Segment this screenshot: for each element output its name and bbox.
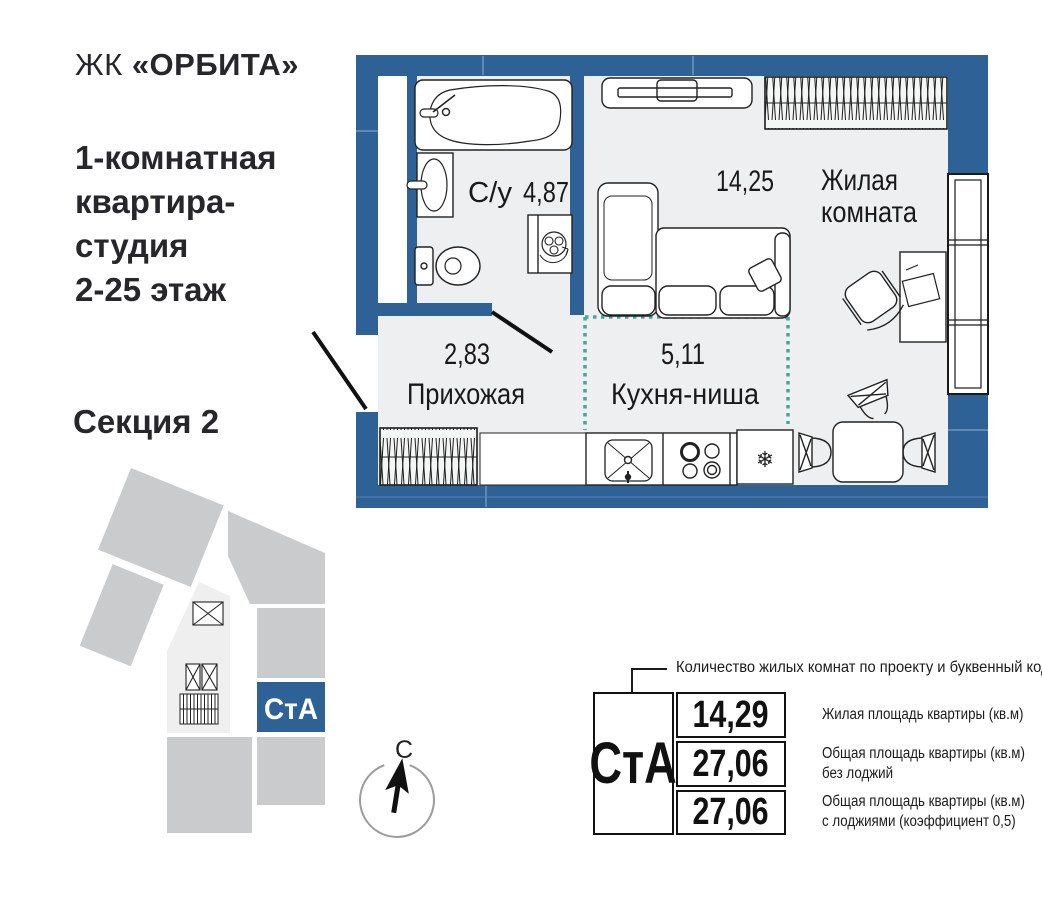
complex-prefix: ЖК (75, 47, 123, 82)
legend-unit-code: СтА (593, 692, 674, 835)
living-room-label: комната (821, 196, 917, 229)
living-room-area: 14,25 (716, 165, 774, 198)
floor-plan: ❄ С/у 4,87 14,25 Жилая комната 2,83 Прих… (300, 40, 1010, 520)
toilet (415, 247, 480, 285)
unit-code-badge: СтА (264, 693, 318, 726)
entry-cabinet (480, 433, 586, 485)
fridge-snowflake-icon: ❄ (756, 447, 774, 472)
living-room-label: Жилая (821, 164, 898, 197)
hallway-wardrobe (380, 428, 477, 485)
north-compass: С (340, 722, 460, 842)
apartment-title-line: 1-комнатная (75, 136, 277, 180)
legend-desc: Общая площадь квартиры (кв.м) без лоджий (822, 744, 1042, 783)
apartment-title-line: студия (75, 224, 277, 268)
legend-note: Количество жилых комнат по проекту и бук… (676, 659, 1042, 677)
wardrobe (765, 77, 947, 129)
kitchen-area: 5,11 (661, 338, 705, 371)
dining-table (833, 422, 903, 482)
entrance-door-leaf (313, 332, 366, 409)
complex-title: «ОРБИТА» (132, 47, 299, 82)
legend-value-living: 14,29 (676, 692, 786, 738)
apartment-title-line: квартира- (75, 180, 277, 224)
fridge: ❄ (737, 430, 793, 484)
north-letter: С (395, 736, 413, 764)
desk (900, 252, 946, 342)
bathroom-area: 4,87 (523, 177, 569, 209)
window (948, 174, 988, 394)
bathroom-label: С/у (468, 177, 513, 209)
hallway-label: Прихожая (407, 378, 525, 411)
section-label: Секция 2 (73, 403, 219, 441)
hallway-area: 2,83 (444, 338, 490, 371)
legend-value-total: 27,06 (676, 741, 786, 787)
washing-machine (528, 215, 572, 273)
apartment-title-line: 2-25 этаж (75, 268, 277, 312)
legend-value-total-loggia: 27,06 (676, 790, 786, 835)
section-locator: СтА (55, 450, 345, 840)
apartment-title: 1-комнатная квартира- студия 2-25 этаж (75, 136, 277, 312)
stairs-icon (180, 694, 218, 724)
legend-desc: Общая площадь квартиры (кв.м) с лоджиями… (822, 792, 1042, 831)
kitchen-label: Кухня-ниша (611, 378, 759, 411)
utility-shaft (378, 75, 407, 303)
north-arrow-icon (382, 757, 414, 815)
tv-stand (602, 78, 752, 108)
legend-desc: Жилая площадь квартиры (кв.м) (822, 705, 1042, 725)
bathtub (415, 80, 572, 150)
complex-name: ЖК «ОРБИТА» (75, 47, 299, 83)
